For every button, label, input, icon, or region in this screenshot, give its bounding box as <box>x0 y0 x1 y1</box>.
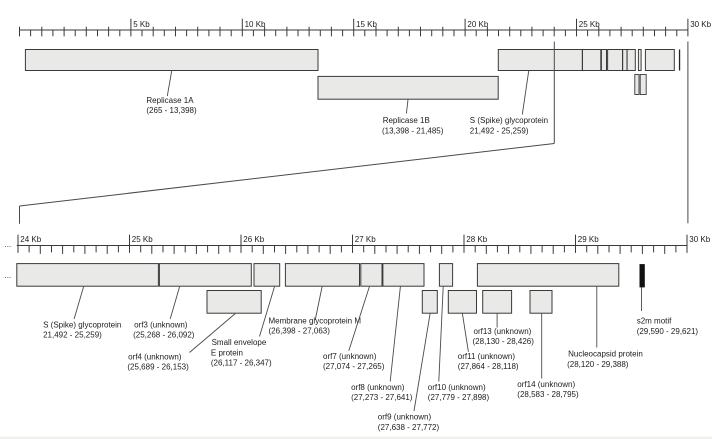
svg-text:Nucleocapsid protein: Nucleocapsid protein <box>568 350 643 359</box>
svg-text:(27,779 - 27,898): (27,779 - 27,898) <box>428 393 490 402</box>
svg-text:29 Kb: 29 Kb <box>578 235 599 244</box>
svg-text:(27,638 - 27,772): (27,638 - 27,772) <box>378 423 440 432</box>
svg-text:...: ... <box>5 240 12 249</box>
svg-text:Membrane glycoprotein M: Membrane glycoprotein M <box>269 316 362 325</box>
svg-text:orf8 (unknown): orf8 (unknown) <box>351 383 405 392</box>
svg-text:Replicase 1B: Replicase 1B <box>383 116 430 125</box>
svg-text:26 Kb: 26 Kb <box>243 235 264 244</box>
svg-text:s2m motif: s2m motif <box>637 317 672 326</box>
svg-text:orf13 (unknown): orf13 (unknown) <box>474 327 532 336</box>
svg-text:orf4 (unknown): orf4 (unknown) <box>128 352 182 361</box>
svg-text:orf7 (unknown): orf7 (unknown) <box>323 352 377 361</box>
svg-text:(28,583 - 28,795): (28,583 - 28,795) <box>517 390 579 399</box>
svg-text:orf10 (unknown): orf10 (unknown) <box>428 383 486 392</box>
svg-text:21,492 - 25,259): 21,492 - 25,259) <box>43 331 102 340</box>
svg-text:(28,130 - 28,426): (28,130 - 28,426) <box>473 337 535 346</box>
svg-text:(25,689 - 26,153): (25,689 - 26,153) <box>127 363 189 372</box>
svg-text:28 Kb: 28 Kb <box>466 235 487 244</box>
svg-text:S (Spike) glycoprotein: S (Spike) glycoprotein <box>470 116 548 125</box>
svg-text:S (Spike) glycoprotein: S (Spike) glycoprotein <box>43 320 121 329</box>
svg-text:5 Kb: 5 Kb <box>133 20 150 29</box>
svg-text:27 Kb: 27 Kb <box>355 235 376 244</box>
svg-text:E protein: E protein <box>211 348 243 357</box>
svg-text:(27,864 - 28,118): (27,864 - 28,118) <box>458 362 519 371</box>
svg-text:(28,120 - 29,388): (28,120 - 29,388) <box>567 360 629 369</box>
svg-text:25 Kb: 25 Kb <box>579 20 600 29</box>
svg-text:30 Kb: 30 Kb <box>689 235 710 244</box>
svg-text:orf3 (unknown): orf3 (unknown) <box>134 320 188 329</box>
svg-text:30 Kb: 30 Kb <box>690 20 711 29</box>
svg-text:25 Kb: 25 Kb <box>132 235 153 244</box>
svg-text:24 Kb: 24 Kb <box>20 235 41 244</box>
svg-text:(25,268 - 26,092): (25,268 - 26,092) <box>133 331 195 340</box>
svg-text:orf9 (unknown): orf9 (unknown) <box>378 413 432 422</box>
svg-text:(13,398 - 21,485): (13,398 - 21,485) <box>382 126 444 135</box>
svg-text:Small envelope: Small envelope <box>212 338 267 347</box>
svg-text:(27,074 - 27,265): (27,074 - 27,265) <box>323 362 385 371</box>
svg-text:(26,117 - 26,347): (26,117 - 26,347) <box>211 359 272 368</box>
svg-text:10 Kb: 10 Kb <box>245 20 266 29</box>
svg-text:...: ... <box>5 271 12 280</box>
svg-text:(265 - 13,398): (265 - 13,398) <box>146 106 197 115</box>
svg-text:orf14 (unknown): orf14 (unknown) <box>517 380 575 389</box>
svg-text:(26,398 - 27,063): (26,398 - 27,063) <box>269 327 331 336</box>
svg-text:15 Kb: 15 Kb <box>356 20 377 29</box>
svg-text:21,492 - 25,259): 21,492 - 25,259) <box>470 126 529 135</box>
svg-text:(29,590 - 29,621): (29,590 - 29,621) <box>637 327 699 336</box>
svg-text:(27,273 - 27,641): (27,273 - 27,641) <box>351 393 413 402</box>
svg-text:orf11 (unknown): orf11 (unknown) <box>458 352 516 361</box>
svg-text:20 Kb: 20 Kb <box>467 20 488 29</box>
svg-text:Replicase 1A: Replicase 1A <box>146 96 194 105</box>
